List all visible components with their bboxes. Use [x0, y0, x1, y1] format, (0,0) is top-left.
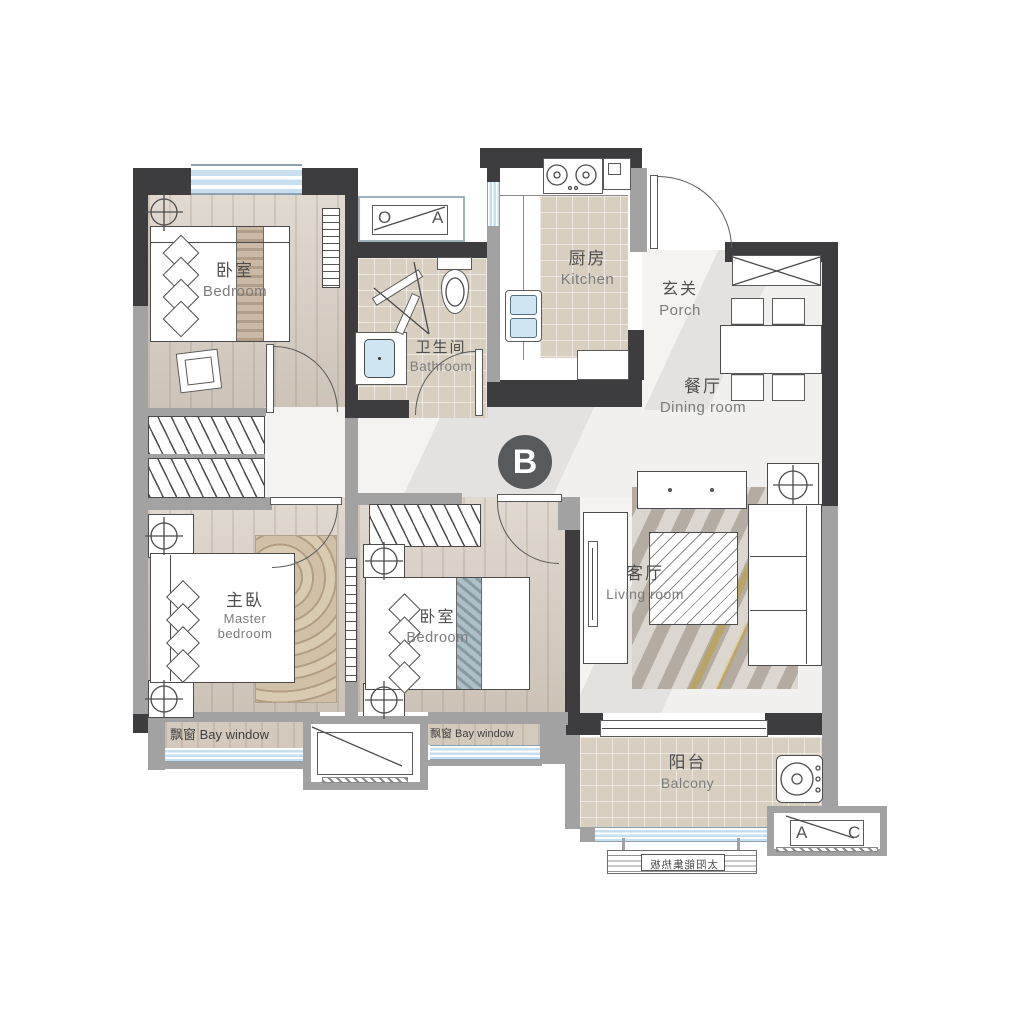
label-porch: 玄关 Porch: [635, 280, 725, 320]
ceiling-lamp-icon: [773, 465, 813, 505]
label-bedroom-top-en: Bedroom: [175, 282, 295, 302]
label-bathroom: 卫生间 Bathroom: [393, 338, 489, 375]
label-balcony: 阳台 Balcony: [630, 752, 745, 792]
label-bedroom-middle-en: Bedroom: [380, 629, 495, 648]
label-bathroom-en: Bathroom: [393, 358, 489, 376]
label-balcony-en: Balcony: [630, 774, 745, 792]
label-master-bedroom: 主臥 Master bedroom: [195, 590, 295, 642]
ceiling-lamp-icon: [365, 542, 403, 580]
washing-machine-drum: [781, 763, 820, 795]
label-bedroom-middle: 卧室 Bedroom: [380, 608, 495, 648]
label-dining-zh: 餐厅: [628, 376, 778, 398]
label-master-zh: 主臥: [195, 590, 295, 612]
label-living-room: 客厅 Living room: [580, 563, 710, 603]
label-porch-en: Porch: [635, 301, 725, 321]
label-dining: 餐厅 Dining room: [628, 376, 778, 418]
ceiling-lamp-icon: [365, 681, 403, 719]
ac-middle-diagonal: [312, 727, 402, 766]
floor-plan: 飘窗 Bay window 飘窗 Bay window: [0, 0, 1016, 1016]
ac-bottom-diagonal: [786, 816, 854, 838]
unit-marker-b: B: [498, 435, 552, 489]
label-dining-en: Dining room: [628, 398, 778, 418]
label-bathroom-zh: 卫生间: [393, 338, 489, 358]
label-kitchen-zh: 厨房: [540, 248, 635, 270]
stove-knob: [575, 187, 578, 190]
stove-burner-icon: [576, 165, 596, 185]
toilet-inner: [446, 278, 464, 306]
stove-burner-icon: [547, 165, 567, 185]
label-bedroom-top: 卧室 Bedroom: [175, 260, 295, 302]
label-living-en: Living room: [580, 585, 710, 603]
label-living-zh: 客厅: [580, 563, 710, 585]
plan-line-overlay: [0, 0, 1016, 1016]
label-porch-zh: 玄关: [635, 280, 725, 301]
stove-knob: [569, 187, 572, 190]
label-kitchen: 厨房 Kitchen: [540, 248, 635, 290]
label-master-en: Master bedroom: [209, 612, 281, 642]
ac-top-diagonal: [374, 207, 445, 230]
ceiling-lamp-icon: [145, 680, 183, 718]
label-bedroom-top-zh: 卧室: [175, 260, 295, 282]
label-balcony-zh: 阳台: [630, 752, 745, 774]
ceiling-lamp-icon: [145, 517, 183, 555]
label-kitchen-en: Kitchen: [540, 270, 635, 290]
label-bedroom-middle-zh: 卧室: [380, 608, 495, 629]
ceiling-lamp-icon: [145, 193, 183, 231]
